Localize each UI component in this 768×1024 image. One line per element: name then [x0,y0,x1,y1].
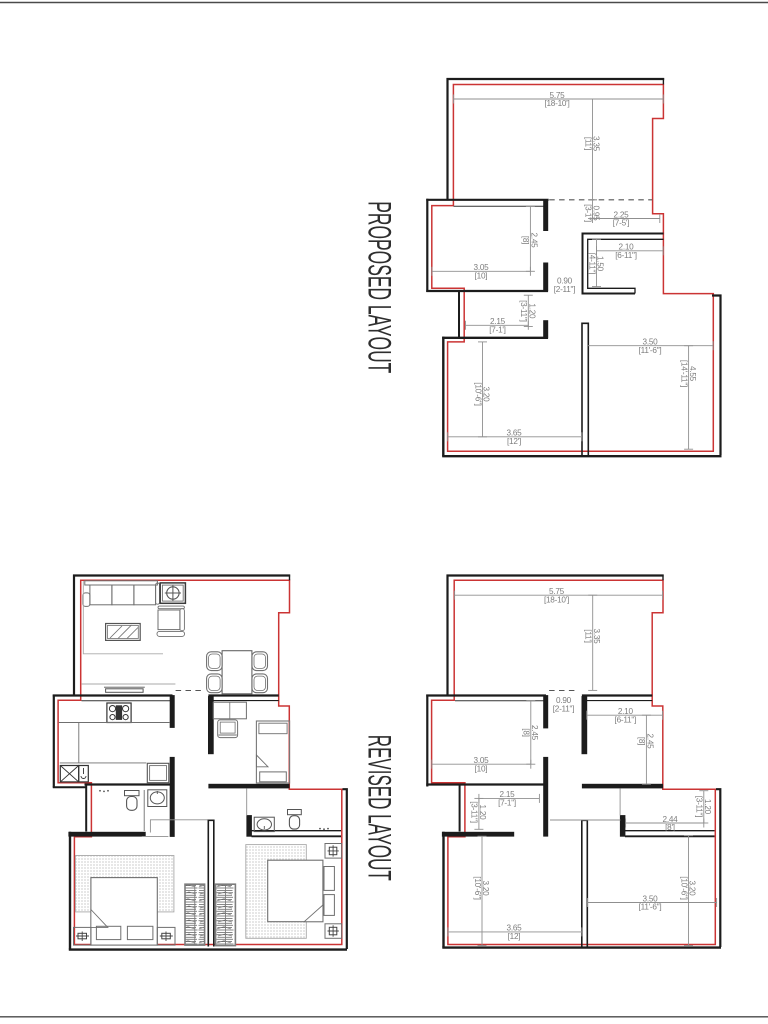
svg-text:[6-11"]: [6-11"] [615,715,636,724]
svg-text:[4-11"]: [4-11"] [587,253,596,274]
svg-text:[10'-6"]: [10'-6"] [473,382,482,405]
svg-text:[12]: [12] [508,932,521,941]
svg-text:[2-11"]: [2-11"] [554,285,575,294]
svg-text:[8]: [8] [637,737,646,745]
svg-text:[8']: [8'] [665,823,675,832]
svg-text:REVISED LAYOUT: REVISED LAYOUT [362,735,398,881]
svg-text:[11']: [11'] [584,629,593,642]
svg-text:[10]: [10] [475,764,488,773]
svg-text:[10'-6"]: [10'-6"] [679,876,688,899]
svg-text:[7-1']: [7-1'] [489,326,505,335]
svg-text:[3-11"]: [3-11"] [470,801,479,822]
svg-text:[8]: [8] [522,728,531,736]
svg-text:[10'-6"]: [10'-6"] [473,876,482,899]
svg-text:[2-11"]: [2-11"] [553,704,574,713]
svg-text:[3-11"]: [3-11"] [519,300,528,321]
svg-text:[18-10']: [18-10'] [544,99,569,108]
svg-text:[6-11"]: [6-11"] [615,251,636,260]
svg-text:[11'-6"]: [11'-6"] [639,346,662,355]
svg-text:[11']: [11'] [583,137,592,150]
svg-text:[14'-11"]: [14'-11"] [679,360,688,387]
svg-text:[8]: [8] [521,236,530,244]
svg-text:[3-1"]: [3-1"] [583,204,592,222]
svg-text:[18-10']: [18-10'] [544,595,569,604]
svg-text:[10]: [10] [475,272,488,281]
svg-text:[7-1"]: [7-1"] [498,799,516,808]
svg-text:[7-5']: [7-5'] [613,219,629,228]
svg-text:[11'-6"]: [11'-6"] [639,903,662,912]
svg-text:[12']: [12'] [507,437,521,446]
svg-text:PROPOSED LAYOUT: PROPOSED LAYOUT [362,201,398,373]
svg-text:[3-11"]: [3-11"] [695,796,704,817]
